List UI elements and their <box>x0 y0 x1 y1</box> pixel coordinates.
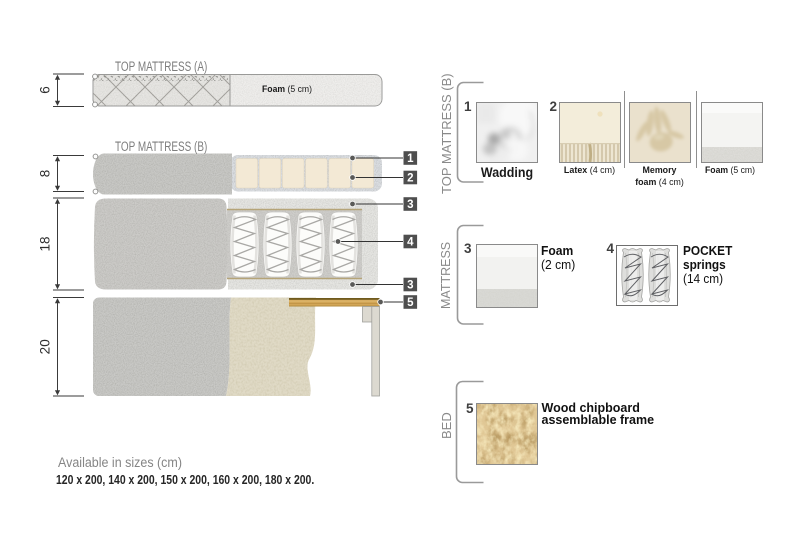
svg-text:20: 20 <box>38 339 53 354</box>
svg-text:3: 3 <box>407 199 413 211</box>
svg-text:4: 4 <box>407 237 414 249</box>
svg-text:5: 5 <box>407 297 414 309</box>
svg-text:2: 2 <box>407 173 413 185</box>
svg-text:18: 18 <box>38 236 53 251</box>
svg-text:1: 1 <box>407 153 414 165</box>
svg-text:8: 8 <box>38 170 53 178</box>
svg-text:3: 3 <box>407 280 413 292</box>
svg-text:6: 6 <box>38 86 53 94</box>
